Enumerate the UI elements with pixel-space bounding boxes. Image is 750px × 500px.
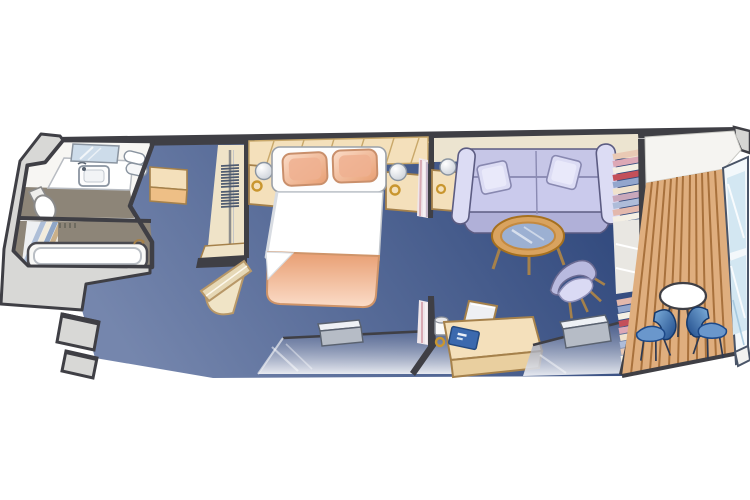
hangers <box>221 165 239 207</box>
faucet-icon <box>82 167 86 171</box>
lamp-left <box>256 163 273 180</box>
mirror <box>71 144 119 163</box>
queen-bed <box>266 147 386 307</box>
table-lamp <box>440 159 456 175</box>
floor-plan-stage: Isometric cruise-ship suite floor plan: … <box>0 0 750 500</box>
entry-vestibule-walls <box>57 314 99 378</box>
glass-top <box>501 223 555 250</box>
lamp-right <box>390 164 407 181</box>
floor-plan-canvas <box>0 0 750 500</box>
duvet <box>266 192 383 260</box>
cabinet <box>150 167 187 204</box>
bedroom-window-bench <box>318 320 363 346</box>
vanity-sink <box>48 158 133 190</box>
